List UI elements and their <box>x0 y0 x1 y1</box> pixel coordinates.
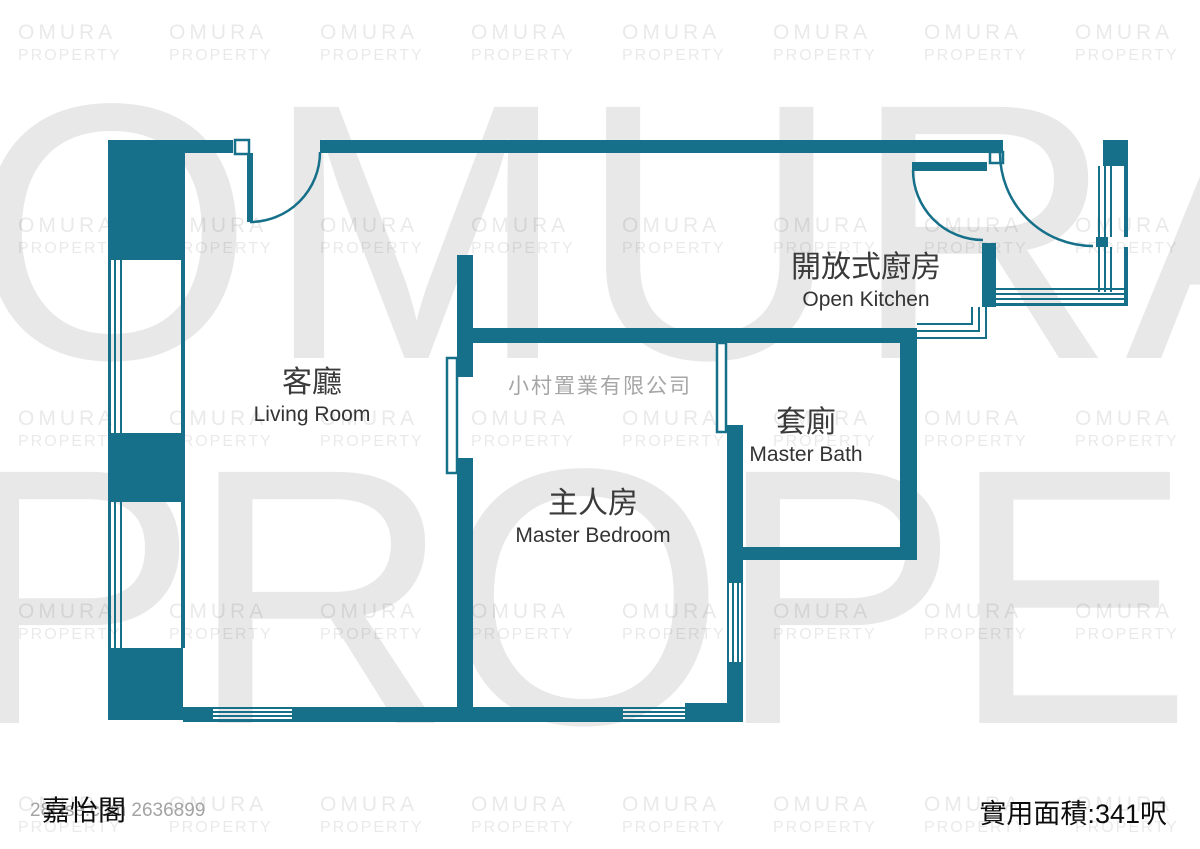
bath-door-panel <box>717 343 726 432</box>
door-arc-entry-gate <box>913 170 983 240</box>
bedroom-sliding-door <box>447 358 457 473</box>
master-bedroom-label-zh: 主人房 <box>515 487 670 522</box>
wall-top-right-block <box>1103 140 1128 166</box>
entry-gate-frame <box>912 162 987 171</box>
door-leaf-top-left <box>247 153 253 222</box>
wall-top-main <box>320 140 1003 153</box>
company-watermark: 小村置業有限公司 <box>508 370 692 400</box>
floor-plan-drawing <box>0 0 1200 849</box>
door-frame-top-left <box>235 140 249 154</box>
usable-area-text: 實用面積:341呎 <box>979 792 1167 831</box>
window-mullion-block <box>1096 237 1108 247</box>
wall-bedroom-bath-top <box>473 328 917 343</box>
wall-living-bedroom-lower <box>457 458 473 708</box>
door-arc-top-left <box>250 152 320 222</box>
wall-top-strip-left <box>185 140 233 153</box>
wall-bottom-a <box>183 707 213 722</box>
room-label-living-room: 客廳 Living Room <box>254 366 371 428</box>
wall-top-left-block <box>108 140 185 260</box>
wall-bottom-left-block <box>108 648 183 720</box>
wall-entry-pillar <box>982 243 996 307</box>
master-bedroom-label-en: Master Bedroom <box>515 522 670 549</box>
wall-bottom-right-block <box>685 703 743 722</box>
wall-left-inner-face-upper <box>181 260 185 433</box>
wall-left-mid-block <box>108 433 185 502</box>
open-kitchen-label-en: Open Kitchen <box>791 286 941 313</box>
living-room-label-zh: 客廳 <box>254 366 371 401</box>
windows <box>108 166 1128 722</box>
wall-living-bedroom-upper <box>457 255 473 377</box>
master-bath-label-en: Master Bath <box>749 441 862 468</box>
wall-bath-bottom <box>727 547 917 560</box>
building-name: 嘉怡閣 <box>42 789 126 829</box>
master-bath-label-zh: 套廁 <box>749 406 862 441</box>
open-kitchen-label-zh: 開放式廚房 <box>791 251 941 286</box>
room-label-open-kitchen: 開放式廚房 Open Kitchen <box>791 251 941 313</box>
floor-plan-page: OMURA PROPERTY OMURAPROPERTYOMURAPROPERT… <box>0 0 1200 849</box>
wall-bedroom-bath-left <box>727 425 743 583</box>
room-label-master-bath: 套廁 Master Bath <box>749 406 862 468</box>
wall-bath-right <box>900 343 917 560</box>
wall-bottom-b <box>292 707 623 722</box>
living-room-label-en: Living Room <box>254 401 371 428</box>
wall-left-inner-face-lower <box>181 502 185 648</box>
door-arc-entry-main <box>1000 153 1093 246</box>
room-label-master-bedroom: 主人房 Master Bedroom <box>515 487 670 549</box>
walls <box>108 140 1128 722</box>
